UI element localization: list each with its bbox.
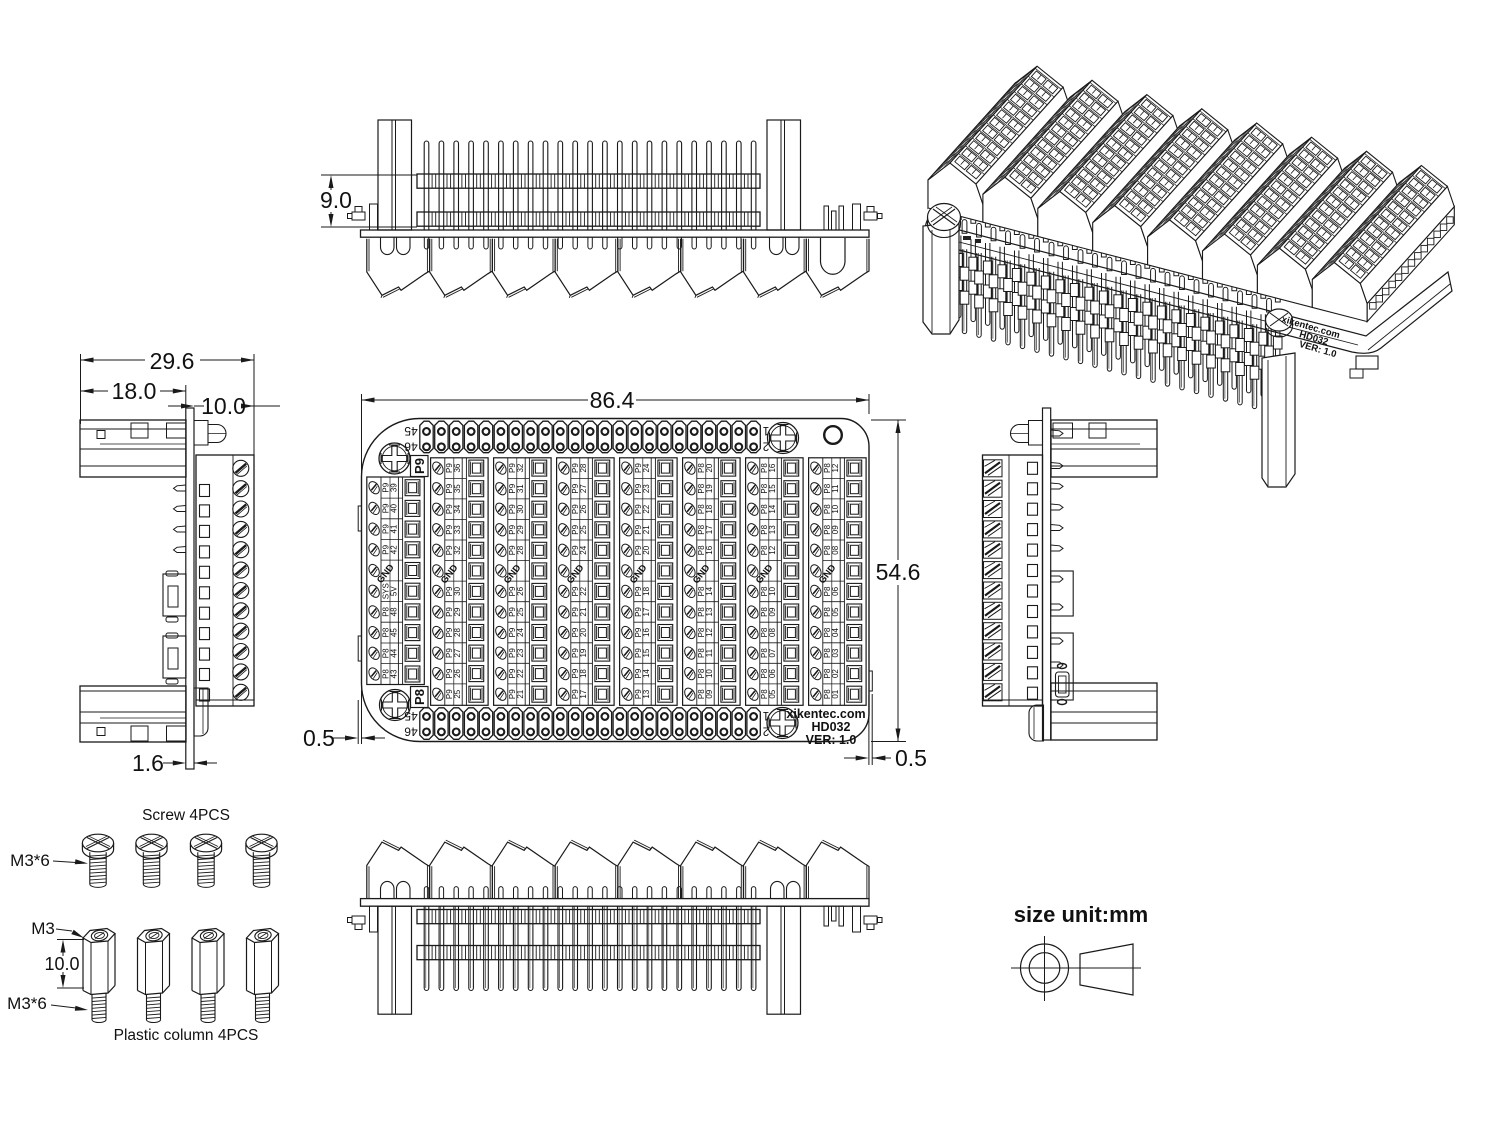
svg-text:11: 11 [705, 648, 714, 657]
svg-text:14: 14 [642, 669, 651, 678]
svg-text:27: 27 [579, 484, 588, 493]
svg-text:20: 20 [705, 463, 714, 472]
svg-text:25: 25 [453, 689, 462, 698]
svg-text:09: 09 [768, 607, 777, 616]
svg-text:06: 06 [768, 669, 777, 678]
svg-text:22: 22 [516, 669, 525, 678]
svg-text:86.4: 86.4 [590, 387, 635, 413]
svg-text:M3: M3 [31, 919, 55, 938]
svg-text:HD032: HD032 [812, 720, 851, 734]
svg-text:08: 08 [831, 545, 840, 554]
svg-text:32: 32 [516, 463, 525, 472]
svg-text:46: 46 [404, 440, 418, 454]
svg-text:44: 44 [389, 648, 398, 657]
svg-text:23: 23 [516, 648, 525, 657]
svg-text:28: 28 [453, 628, 462, 637]
svg-text:10.0: 10.0 [201, 393, 246, 419]
svg-text:16: 16 [705, 545, 714, 554]
svg-text:11: 11 [831, 484, 840, 493]
svg-text:17: 17 [579, 689, 588, 698]
svg-text:26: 26 [516, 586, 525, 595]
svg-text:15: 15 [642, 648, 651, 657]
svg-text:12: 12 [705, 628, 714, 637]
svg-text:size unit:mm: size unit:mm [1014, 902, 1148, 927]
svg-text:28: 28 [579, 463, 588, 472]
svg-text:29: 29 [516, 525, 525, 534]
svg-text:2: 2 [762, 440, 769, 454]
svg-text:34: 34 [453, 504, 462, 513]
svg-text:35: 35 [453, 484, 462, 493]
svg-text:10: 10 [705, 669, 714, 678]
svg-text:13: 13 [642, 689, 651, 698]
svg-text:02: 02 [831, 669, 840, 678]
svg-text:06: 06 [831, 586, 840, 595]
svg-text:1: 1 [762, 424, 769, 438]
svg-text:14: 14 [768, 504, 777, 513]
svg-text:05: 05 [768, 689, 777, 698]
svg-text:45: 45 [389, 628, 398, 637]
svg-text:19: 19 [579, 648, 588, 657]
svg-text:12: 12 [831, 463, 840, 472]
svg-text:P8: P8 [412, 689, 427, 705]
svg-text:26: 26 [453, 669, 462, 678]
svg-text:54.6: 54.6 [876, 559, 921, 585]
svg-text:19: 19 [705, 484, 714, 493]
svg-text:14: 14 [705, 586, 714, 595]
svg-text:17: 17 [705, 525, 714, 534]
svg-text:41: 41 [389, 524, 398, 533]
svg-text:21: 21 [579, 607, 588, 616]
svg-text:0.5: 0.5 [895, 745, 927, 771]
svg-text:24: 24 [642, 463, 651, 472]
svg-text:1: 1 [762, 709, 769, 723]
svg-text:9.0: 9.0 [320, 187, 352, 213]
svg-text:27: 27 [453, 648, 462, 657]
svg-text:Plastic column 4PCS: Plastic column 4PCS [114, 1027, 259, 1044]
svg-text:45: 45 [404, 709, 418, 723]
svg-text:10.0: 10.0 [44, 954, 79, 974]
svg-text:25: 25 [579, 525, 588, 534]
svg-text:16: 16 [768, 463, 777, 472]
svg-text:1.6: 1.6 [132, 750, 164, 776]
svg-text:13: 13 [705, 607, 714, 616]
svg-text:21: 21 [642, 525, 651, 534]
svg-text:12: 12 [768, 545, 777, 554]
svg-text:18: 18 [705, 504, 714, 513]
svg-text:33: 33 [453, 525, 462, 534]
svg-text:M3*6: M3*6 [7, 994, 47, 1013]
svg-text:01: 01 [831, 689, 840, 698]
svg-text:23: 23 [642, 484, 651, 493]
svg-text:17: 17 [642, 607, 651, 616]
svg-text:18: 18 [579, 669, 588, 678]
svg-text:05: 05 [831, 607, 840, 616]
svg-text:16: 16 [642, 628, 651, 637]
svg-text:VER: 1.0: VER: 1.0 [806, 733, 857, 747]
svg-text:03: 03 [831, 648, 840, 657]
svg-text:2: 2 [762, 725, 769, 739]
svg-text:30: 30 [453, 586, 462, 595]
svg-text:18.0: 18.0 [112, 378, 157, 404]
svg-text:M3*6: M3*6 [10, 851, 50, 870]
svg-text:42: 42 [389, 545, 398, 554]
svg-text:0.5: 0.5 [303, 725, 335, 751]
svg-text:20: 20 [579, 628, 588, 637]
svg-text:15: 15 [768, 484, 777, 493]
svg-text:48: 48 [389, 607, 398, 616]
svg-text:31: 31 [516, 484, 525, 493]
svg-text:32: 32 [453, 545, 462, 554]
svg-text:24: 24 [579, 545, 588, 554]
svg-text:Screw 4PCS: Screw 4PCS [142, 807, 230, 824]
svg-text:28: 28 [516, 545, 525, 554]
svg-text:04: 04 [831, 628, 840, 637]
svg-text:46: 46 [404, 725, 418, 739]
svg-text:36: 36 [453, 463, 462, 472]
svg-text:xikentec.com: xikentec.com [786, 707, 865, 721]
svg-text:29: 29 [453, 607, 462, 616]
svg-text:24: 24 [516, 628, 525, 637]
svg-text:07: 07 [768, 648, 777, 657]
svg-text:26: 26 [579, 504, 588, 513]
svg-text:30: 30 [516, 504, 525, 513]
svg-text:39: 39 [389, 483, 398, 492]
svg-text:21: 21 [516, 689, 525, 698]
svg-text:20: 20 [642, 545, 651, 554]
svg-text:10: 10 [831, 504, 840, 513]
svg-text:08: 08 [768, 628, 777, 637]
svg-text:10: 10 [768, 586, 777, 595]
svg-text:18: 18 [642, 586, 651, 595]
svg-text:13: 13 [768, 525, 777, 534]
svg-text:09: 09 [705, 689, 714, 698]
svg-text:P9: P9 [412, 458, 427, 474]
svg-text:22: 22 [642, 504, 651, 513]
svg-text:40: 40 [389, 503, 398, 512]
svg-text:5V: 5V [389, 586, 398, 596]
svg-text:45: 45 [404, 424, 418, 438]
svg-text:29.6: 29.6 [150, 348, 195, 374]
svg-text:43: 43 [389, 669, 398, 678]
svg-text:25: 25 [516, 607, 525, 616]
svg-text:22: 22 [579, 586, 588, 595]
svg-text:09: 09 [831, 525, 840, 534]
